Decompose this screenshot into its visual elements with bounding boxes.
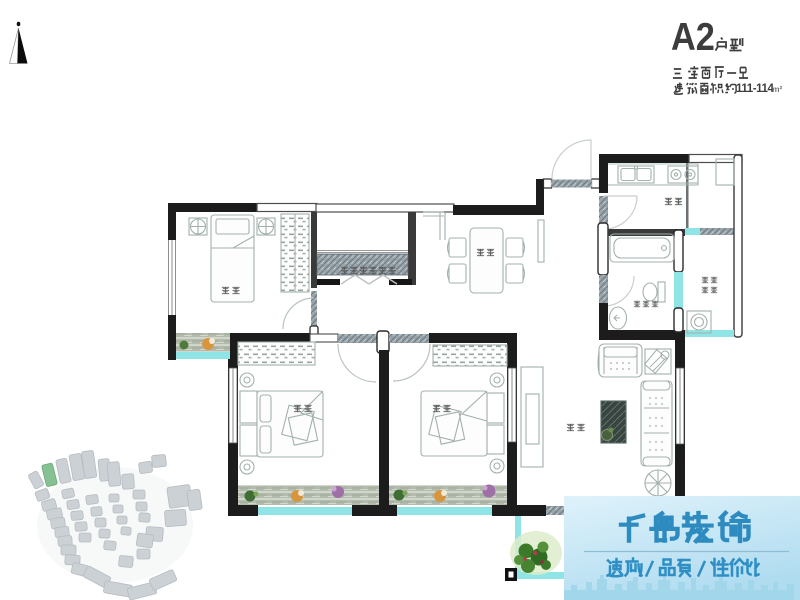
svg-text:111-114: 111-114 xyxy=(736,83,775,95)
svg-text:m²: m² xyxy=(772,84,783,94)
svg-text:A2: A2 xyxy=(671,15,715,59)
